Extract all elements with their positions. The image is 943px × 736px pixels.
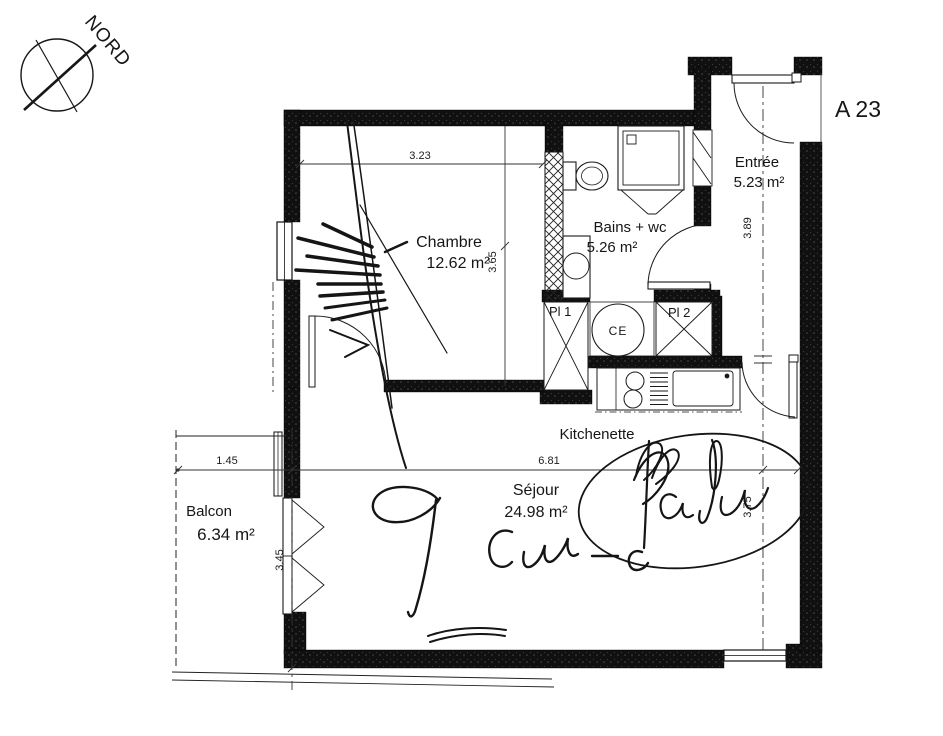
compass: NORD: [21, 12, 135, 112]
door-sejour: [742, 355, 798, 418]
room-area: 5.26 m²: [587, 239, 638, 256]
balcony-outline: [172, 430, 554, 687]
room-label-balcon: Balcon 6.34 m²: [186, 503, 255, 544]
door-leaf: [648, 282, 710, 289]
signature-ellipse-scribble: [570, 419, 818, 582]
wall-left-mid: [284, 280, 300, 388]
door-arc: [734, 83, 794, 143]
dim-horizontal-main: 1.45 6.81: [174, 455, 802, 474]
dim-value: 3.23: [409, 150, 430, 162]
room-name: Entrée: [735, 154, 779, 171]
door-entrance: [732, 73, 801, 143]
wall-right: [800, 142, 822, 652]
room-label-bains: Bains + wc 5.26 m²: [587, 219, 667, 256]
room-label-sejour: Séjour 24.98 m²: [504, 482, 568, 521]
dim-value: 6.81: [538, 455, 559, 467]
door-hinge: [789, 355, 798, 362]
compass-crossline: [36, 40, 77, 112]
door-leaf: [789, 361, 797, 418]
floorplan-page: NORD A 23: [0, 0, 943, 736]
unit-label: A 23: [835, 96, 881, 122]
window-sejour-bottom: [724, 650, 786, 661]
door-leaf: [732, 75, 794, 83]
window-balcony-rail: [274, 432, 282, 496]
closet-pl2-label: Pl 2: [668, 305, 690, 320]
wall-bottom: [284, 650, 724, 668]
balcony-slab-edge: [172, 680, 554, 687]
room-label-kitchenette: Kitchenette: [559, 426, 634, 443]
door-leaf: [309, 316, 315, 387]
dim-value: 3.45: [274, 549, 286, 570]
door-swing-triangle: [292, 558, 324, 612]
fixtures: [544, 126, 742, 412]
dim-chambre-depth: 3.65: [487, 126, 509, 386]
wall-sejour-left-lower: [284, 612, 306, 654]
room-label-chambre: Chambre 12.62 m²: [416, 234, 490, 272]
doors: [283, 73, 801, 614]
room-area: 12.62 m²: [426, 255, 490, 272]
hatched-wall-fill: [545, 152, 563, 302]
wall-entree-column-upper: [694, 67, 711, 130]
kitchenette-counter: [595, 368, 742, 412]
closet-pl1-label: Pl 1: [549, 304, 571, 319]
wall-chambre-bottom: [384, 380, 544, 392]
floorplan-drawing: NORD A 23: [0, 0, 943, 736]
room-name: Balcon: [186, 503, 232, 520]
wall-entree-column-mid: [694, 186, 711, 226]
feather-sketch: [296, 112, 447, 468]
compass-needle-icon: [24, 45, 96, 110]
dim-value: 3.89: [742, 217, 754, 238]
faucet-icon: [725, 374, 730, 379]
wall-entrance-right: [794, 57, 822, 75]
room-label-entree: Entrée 5.23 m²: [734, 154, 785, 191]
room-area: 5.23 m²: [734, 174, 785, 191]
room-name: Bains + wc: [594, 219, 667, 236]
door-swing-triangle: [292, 500, 324, 554]
dim-chambre-width: 3.23: [296, 150, 547, 168]
door-balcony-french: [283, 498, 324, 614]
hatched-wall: [545, 152, 563, 302]
shower-icon: [618, 126, 684, 214]
compass-circle: [21, 39, 93, 111]
wall-kitchenette-top: [588, 356, 742, 368]
water-heater-label: CE: [609, 324, 628, 338]
toilet-icon: [563, 162, 608, 190]
balcony-slab-edge: [172, 672, 552, 679]
wall-bains-top: [545, 122, 563, 152]
window-chambre: [277, 222, 292, 280]
wall-pl1-bottom: [540, 390, 592, 404]
door-arc: [742, 362, 795, 417]
compass-north-label: NORD: [80, 12, 135, 71]
room-area: 6.34 m²: [197, 525, 255, 544]
room-name: Séjour: [513, 482, 560, 499]
room-name: Chambre: [416, 234, 482, 251]
room-area: 24.98 m²: [504, 504, 568, 521]
entree-closet-shelves: [693, 130, 712, 186]
dim-value: 1.45: [216, 455, 237, 467]
door-hinge: [792, 73, 801, 82]
